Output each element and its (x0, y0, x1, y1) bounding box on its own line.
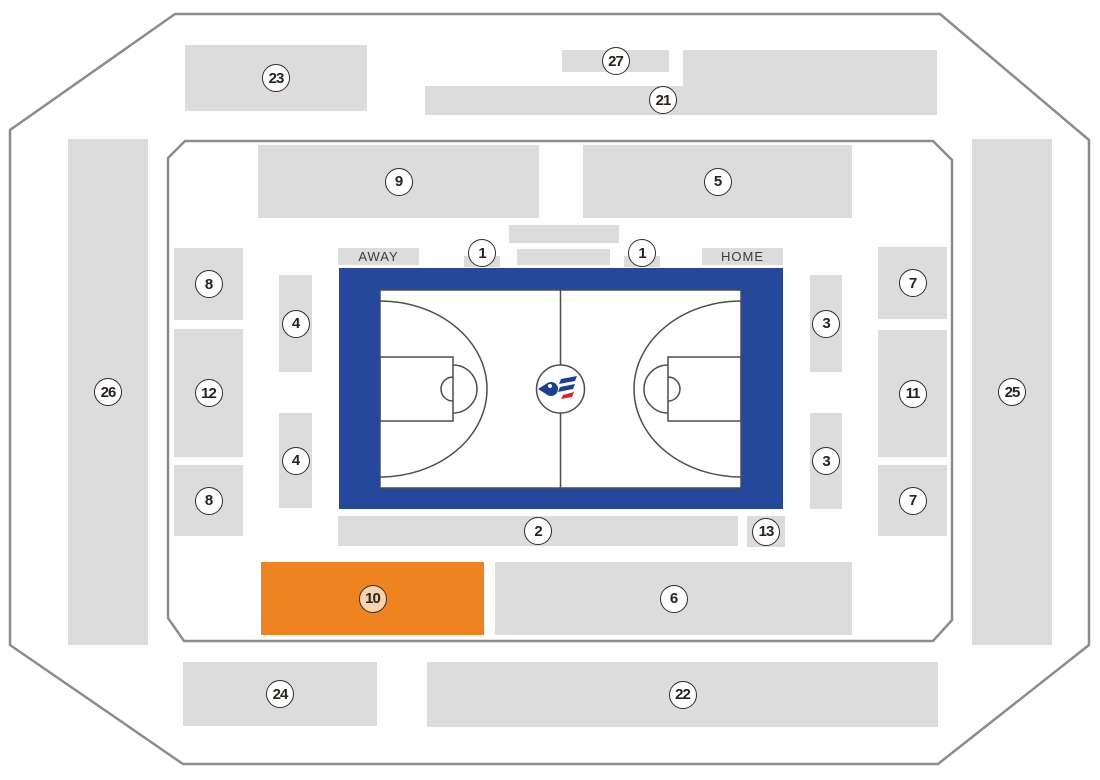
section-25-badge: 25 (998, 378, 1026, 406)
section-23-badge: 23 (262, 64, 290, 92)
section-bar-upper-center (509, 225, 619, 243)
section-2-badge: 2 (524, 517, 552, 545)
section-1-away-badge: 1 (468, 239, 496, 267)
section-4-lower-badge: 4 (282, 447, 310, 475)
section-8-lower-badge: 8 (195, 487, 223, 515)
section-22-badge: 22 (669, 681, 697, 709)
section-12-badge: 12 (195, 379, 223, 407)
section-8-upper-badge: 8 (195, 270, 223, 298)
home-bench-label: HOME (702, 248, 783, 265)
section-5-badge: 5 (704, 168, 732, 196)
section-7-lower-badge: 7 (899, 487, 927, 515)
section-1-home-badge: 1 (628, 239, 656, 267)
section-deck-top-right (683, 50, 937, 86)
section-3-lower-badge: 3 (812, 447, 840, 475)
away-text: AWAY (358, 249, 398, 264)
section-27-badge: 27 (602, 47, 630, 75)
section-26-badge: 26 (94, 378, 122, 406)
section-24-badge: 24 (266, 680, 294, 708)
section-bar-lower-center (517, 249, 610, 265)
section-6-badge: 6 (660, 585, 688, 613)
section-10-badge: 10 (359, 585, 387, 613)
section-13-badge: 13 (752, 518, 780, 546)
section-4-upper-badge: 4 (282, 310, 310, 338)
home-text: HOME (721, 249, 764, 264)
section-11-badge: 11 (899, 380, 927, 408)
section-21-badge: 21 (649, 86, 677, 114)
section-7-upper-badge: 7 (899, 269, 927, 297)
away-bench-label: AWAY (338, 248, 419, 265)
section-3-upper-badge: 3 (812, 310, 840, 338)
basketball-court (339, 268, 783, 509)
section-21[interactable] (425, 86, 937, 115)
section-9-badge: 9 (385, 168, 413, 196)
arena-seating-map: 232721952625812844337117112131062422 AWA… (0, 0, 1100, 780)
